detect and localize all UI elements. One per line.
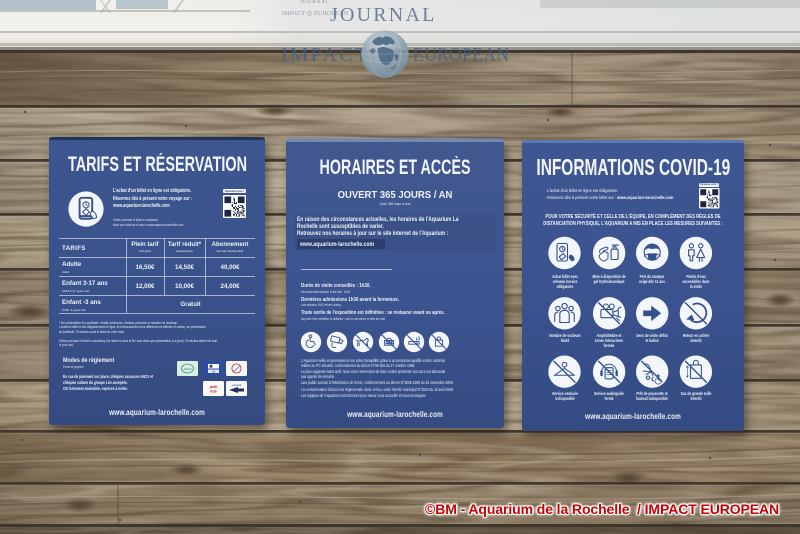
svg-text:petit: petit <box>209 385 218 389</box>
svg-text:futé: futé <box>211 389 218 393</box>
svg-text:ANCV: ANCV <box>183 367 191 371</box>
svg-text:eurocard: eurocard <box>231 384 241 387</box>
svg-text:CB: CB <box>212 370 216 374</box>
